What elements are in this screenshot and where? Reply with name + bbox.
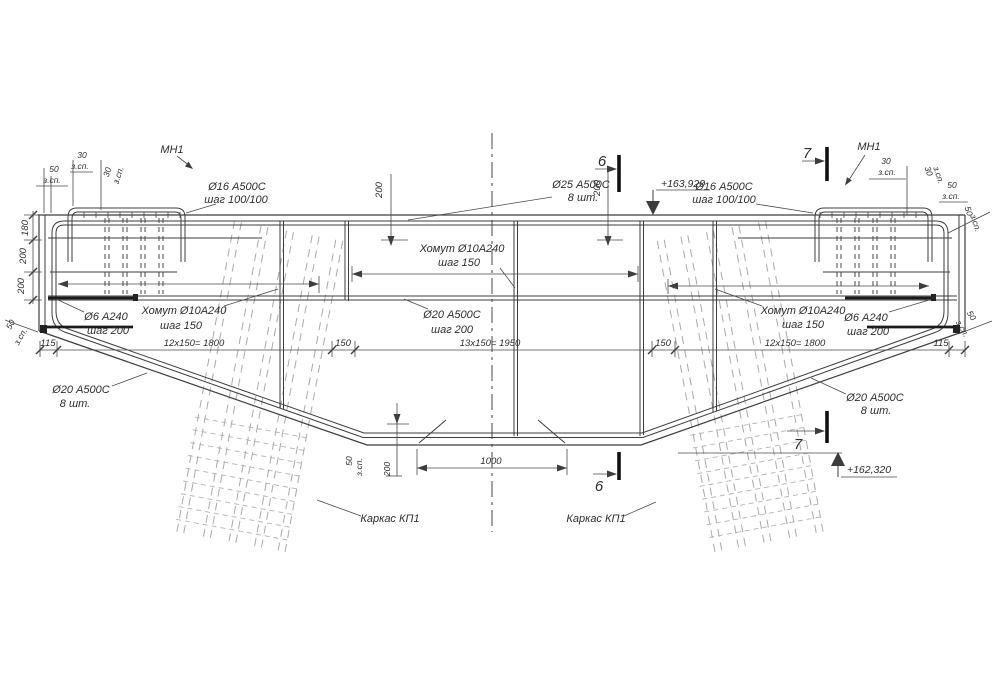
label-d16-right-2: шаг 100/100 <box>692 194 756 206</box>
label-karkas-right: Каркас КП1 <box>566 513 625 525</box>
section-7-top: 7 <box>803 145 812 162</box>
cover-zsp-left: з.сп. <box>42 175 61 185</box>
label-d20-left-1: Ø20 А500С <box>51 384 110 396</box>
label-homut-right-1: Хомут Ø10А240 <box>760 305 847 317</box>
mn1-left-arrow <box>185 162 193 170</box>
section-7-bottom: 7 <box>794 436 803 453</box>
level-mark-bottom: +162,320 <box>678 452 897 477</box>
label-homut-left-1: Хомут Ø10А240 <box>141 305 228 317</box>
cover-50-zsp-rot-right: з.сп. <box>968 212 983 233</box>
cover-zsp-slope-left: з.сп. <box>11 326 29 347</box>
cover-zsp-rot-left: з.сп. <box>110 165 125 186</box>
label-d6-right-1: Ø6 А240 <box>843 312 888 324</box>
section-6-top: 6 <box>598 153 607 170</box>
cover-50-zsp-right: з.сп. <box>941 191 960 201</box>
label-mn1-right: МН1 <box>857 141 880 153</box>
label-d6-left-2: шаг 200 <box>87 325 130 337</box>
pile-cage-right <box>654 220 826 554</box>
cover-50-slope-right: 50 <box>965 309 979 322</box>
bottom-dims: 1000 50 з.сп. 200 <box>344 403 567 477</box>
label-homut-center-1: Хомут Ø10А240 <box>419 243 506 255</box>
dim-1800-left: 12x150= 1800 <box>164 338 225 349</box>
label-d16-left-1: Ø16 А500С <box>207 181 266 193</box>
dim-115-left: 115 <box>40 338 56 349</box>
cover-50-slope-left: 50 <box>4 318 18 331</box>
label-homut-center-2: шаг 150 <box>438 257 481 269</box>
stirrup-zone-dims <box>58 266 929 294</box>
cover-50-left: 50 <box>49 164 59 174</box>
dim-200-b: 200 <box>16 277 27 295</box>
label-karkas-left: Каркас КП1 <box>360 513 419 525</box>
dim-200-bottom: 200 <box>382 462 392 477</box>
label-d20-center-2: шаг 200 <box>431 324 474 336</box>
callout-texts: МН1 МН1 Ø16 А500С шаг 100/100 Ø16 А500С … <box>51 141 904 525</box>
cover-30-right: 30 <box>881 156 891 166</box>
dim-180: 180 <box>20 219 31 236</box>
dim-150-right: 150 <box>655 338 672 349</box>
dim-150-left: 150 <box>335 338 352 349</box>
cover-30-zsp-right: з.сп. <box>877 167 896 177</box>
section-6-bottom: 6 <box>595 478 604 495</box>
dim-1800-right: 12x150= 1800 <box>765 338 826 349</box>
level-bottom-value: +162,320 <box>847 464 891 476</box>
label-d6-left-1: Ø6 А240 <box>83 311 128 323</box>
dim-200-top-left: 200 <box>374 181 385 199</box>
anchor-plate-left <box>40 325 47 333</box>
label-d25-1: Ø25 А500С <box>551 179 610 191</box>
dim-115-right: 115 <box>933 338 949 349</box>
rebar-section-drawing: 115 12x150= 1800 150 13x150= 1950 150 12… <box>0 0 1000 700</box>
label-d25-2: 8 шт. <box>568 192 598 204</box>
left-dimension-column: 180 200 200 <box>16 211 42 304</box>
cover-zsp-rot-right: з.сп. <box>931 164 946 185</box>
label-d16-left-2: шаг 100/100 <box>204 194 268 206</box>
dimension-row: 115 12x150= 1800 150 13x150= 1950 150 12… <box>36 338 969 357</box>
dim-zsp-bottom: з.сп. <box>354 458 364 477</box>
label-d20-right-1: Ø20 А500С <box>845 392 904 404</box>
dim-1000: 1000 <box>480 456 502 467</box>
label-d6-right-2: шаг 200 <box>847 326 890 338</box>
label-mn1-left: МН1 <box>160 144 183 156</box>
dim-200-a: 200 <box>18 247 29 265</box>
label-d16-right-1: Ø16 А500С <box>694 181 753 193</box>
cover-50-right: 50 <box>947 180 957 190</box>
cover-30-left: 30 <box>77 150 87 160</box>
mn1-right-arrow <box>845 177 852 185</box>
dim-50-bottom: 50 <box>344 456 354 466</box>
dim-1950-center: 13x150= 1950 <box>460 338 521 349</box>
label-d20-left-2: 8 шт. <box>60 398 90 410</box>
label-d20-right-2: 8 шт. <box>861 405 891 417</box>
cover-dims-top-left: 50 з.сп. 30 з.сп. 30 з.сп. <box>36 150 126 213</box>
label-d20-center-1: Ø20 А500С <box>422 309 481 321</box>
label-homut-right-2: шаг 150 <box>782 319 825 331</box>
drawing-page: 115 12x150= 1800 150 13x150= 1950 150 12… <box>0 0 1000 700</box>
label-homut-left-2: шаг 150 <box>160 320 203 332</box>
